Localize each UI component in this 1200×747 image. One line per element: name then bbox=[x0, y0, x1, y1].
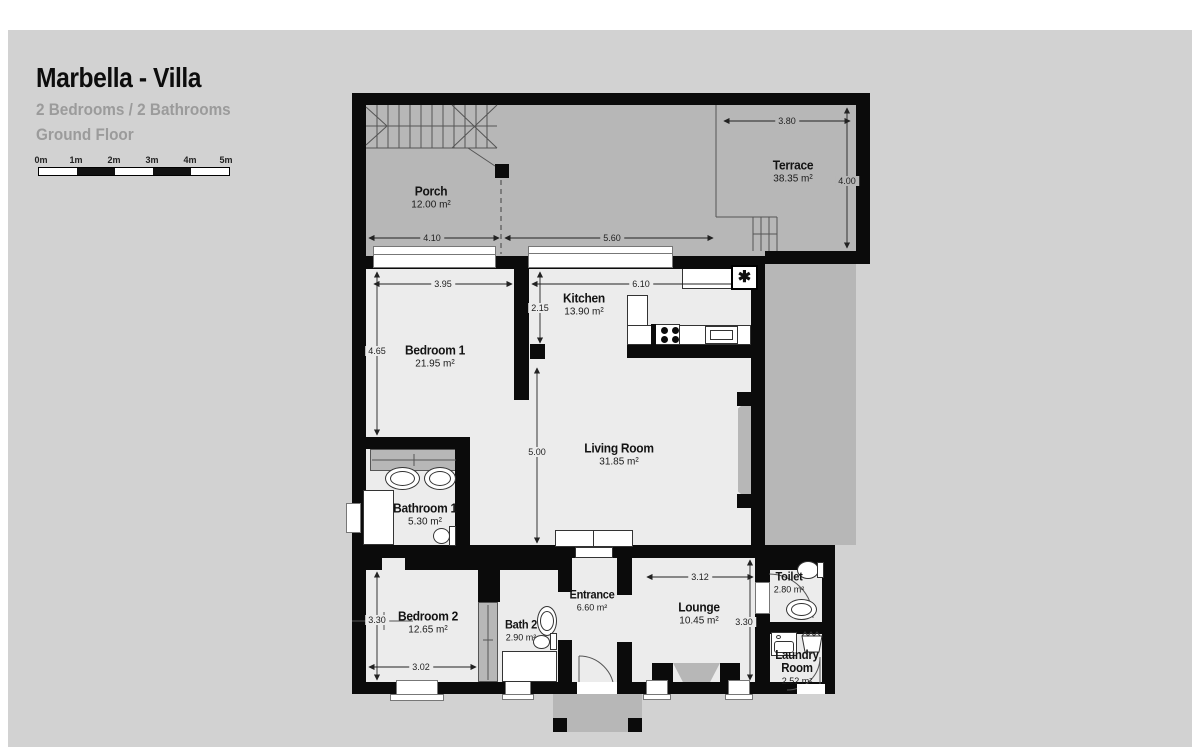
toilet-symbol bbox=[550, 633, 557, 650]
stove-symbol bbox=[651, 324, 656, 345]
window-sill bbox=[502, 694, 534, 700]
wall bbox=[530, 344, 545, 359]
dimension-label-bedroom1-depth: 4.65 bbox=[365, 346, 389, 356]
dimension-label-bedroom2-width: 3.02 bbox=[409, 662, 433, 672]
door-opening bbox=[382, 558, 405, 570]
shower-symbol bbox=[502, 651, 557, 682]
sink-symbol bbox=[429, 471, 451, 486]
label-bedroom1: Bedroom 1 21.95 m² bbox=[402, 343, 467, 370]
dimension-label-bedroom1-width: 3.95 bbox=[431, 279, 455, 289]
scale-label: 5m bbox=[219, 155, 232, 165]
wall bbox=[478, 566, 500, 602]
wall bbox=[352, 93, 870, 105]
window bbox=[346, 503, 361, 533]
toilet-symbol bbox=[449, 526, 456, 546]
fireplace-symbol bbox=[593, 530, 594, 547]
sink-symbol bbox=[390, 471, 415, 486]
wall bbox=[737, 392, 751, 406]
scale-label: 2m bbox=[107, 155, 120, 165]
wall bbox=[765, 251, 870, 264]
dimension-label-kitchen-depth: 2.15 bbox=[528, 303, 552, 313]
window bbox=[373, 254, 496, 268]
wall bbox=[737, 494, 751, 508]
fireplace-symbol bbox=[575, 547, 613, 558]
page-title: Marbella - Villa bbox=[36, 62, 201, 94]
heater-symbol: ✱ bbox=[731, 265, 758, 290]
window-sill bbox=[725, 694, 753, 700]
wall bbox=[352, 437, 470, 449]
window-sill bbox=[643, 694, 671, 700]
label-kitchen: Kitchen 13.90 m² bbox=[561, 291, 607, 318]
front-door-opening bbox=[577, 682, 617, 694]
column-symbol bbox=[628, 718, 642, 732]
scale-label: 4m bbox=[183, 155, 196, 165]
label-lounge: Lounge 10.45 m² bbox=[676, 600, 721, 627]
wall bbox=[627, 345, 765, 358]
dimension-label-lounge-depth: 3.30 bbox=[732, 617, 756, 627]
burner-icon bbox=[661, 327, 668, 334]
floor-plan-sheet: Marbella - Villa 2 Bedrooms / 2 Bathroom… bbox=[0, 0, 1200, 747]
label-entrance: Entrance 6.60 m² bbox=[568, 588, 617, 613]
dimension-label-porch-right: 5.60 bbox=[600, 233, 624, 243]
kitchen-sink-symbol bbox=[710, 330, 733, 340]
wall bbox=[455, 437, 470, 558]
sink-symbol bbox=[791, 603, 812, 616]
scale-label: 1m bbox=[69, 155, 82, 165]
bay-window-symbol bbox=[738, 398, 751, 502]
dimension-label-kitchen-width: 6.10 bbox=[629, 279, 653, 289]
subtitle-rooms: 2 Bedrooms / 2 Bathrooms bbox=[36, 100, 231, 120]
scale-bar-strip bbox=[38, 167, 230, 176]
side-terrace-strip bbox=[765, 264, 856, 545]
door-opening bbox=[755, 582, 770, 614]
dimension-label-lounge-width: 3.12 bbox=[688, 572, 712, 582]
burner-icon bbox=[661, 336, 668, 343]
shower-symbol bbox=[363, 490, 394, 545]
dimension-label-living-depth: 5.00 bbox=[525, 447, 549, 457]
column-symbol bbox=[495, 164, 509, 178]
window bbox=[728, 680, 750, 695]
label-laundry-room: Laundry Room 2.52 m² bbox=[766, 649, 828, 686]
label-bathroom1: Bathroom 1 5.30 m² bbox=[390, 501, 459, 528]
wall bbox=[514, 256, 529, 400]
closet-symbol bbox=[478, 602, 498, 682]
burner-icon bbox=[672, 327, 679, 334]
washing-machine-symbol bbox=[776, 635, 781, 639]
room-living-extension bbox=[470, 437, 530, 545]
label-bedroom2: Bedroom 2 12.65 m² bbox=[395, 609, 460, 636]
wall bbox=[352, 93, 366, 694]
dimension-label-porch-left: 4.10 bbox=[420, 233, 444, 243]
subtitle-floor: Ground Floor bbox=[36, 125, 134, 145]
fireplace-symbol bbox=[555, 530, 633, 547]
label-porch: Porch 12.00 m² bbox=[411, 184, 450, 211]
dimension-label-terrace-depth: 4.00 bbox=[835, 176, 859, 186]
door-opening bbox=[514, 400, 529, 437]
window bbox=[646, 680, 668, 695]
sliding-door-symbol bbox=[528, 253, 673, 268]
dimension-label-bedroom2-depth: 3.30 bbox=[365, 615, 389, 625]
window-sill bbox=[390, 694, 444, 701]
toilet-symbol bbox=[433, 528, 450, 544]
label-bath2: Bath 2 2.90 m² bbox=[504, 618, 539, 643]
sink-symbol bbox=[540, 611, 554, 631]
wall bbox=[751, 256, 765, 558]
burner-icon bbox=[672, 336, 679, 343]
room-entrance bbox=[572, 558, 617, 682]
door-opening bbox=[617, 595, 632, 642]
scale-label: 3m bbox=[145, 155, 158, 165]
scale-label: 0m bbox=[34, 155, 47, 165]
label-living-room: Living Room 31.85 m² bbox=[581, 441, 656, 468]
toilet-symbol bbox=[817, 562, 824, 578]
label-toilet: Toilet 2.80 m² bbox=[774, 570, 805, 595]
dimension-label-terrace-width: 3.80 bbox=[775, 116, 799, 126]
label-terrace: Terrace 38.35 m² bbox=[771, 158, 815, 185]
column-symbol bbox=[553, 718, 567, 732]
wall bbox=[642, 545, 835, 558]
